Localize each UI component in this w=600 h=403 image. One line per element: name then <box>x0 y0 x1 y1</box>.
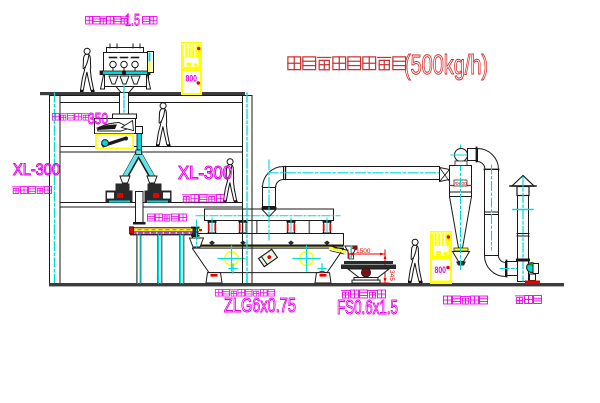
svg-text:(500kg/h): (500kg/h) <box>404 49 488 80</box>
svg-text:1.5: 1.5 <box>125 11 140 30</box>
svg-text:FS0.6x1.5: FS0.6x1.5 <box>337 297 398 319</box>
svg-text:ZLG6x0.75: ZLG6x0.75 <box>224 295 296 317</box>
svg-text:800: 800 <box>435 265 447 275</box>
svg-text:XL-300: XL-300 <box>13 160 60 179</box>
svg-text:800: 800 <box>186 74 198 84</box>
svg-text:1500: 1500 <box>356 248 371 255</box>
svg-text:345: 345 <box>388 270 395 281</box>
svg-text:350: 350 <box>88 111 108 128</box>
svg-text:XL-300: XL-300 <box>178 162 232 183</box>
svg-text:Φ600: Φ600 <box>455 181 467 187</box>
